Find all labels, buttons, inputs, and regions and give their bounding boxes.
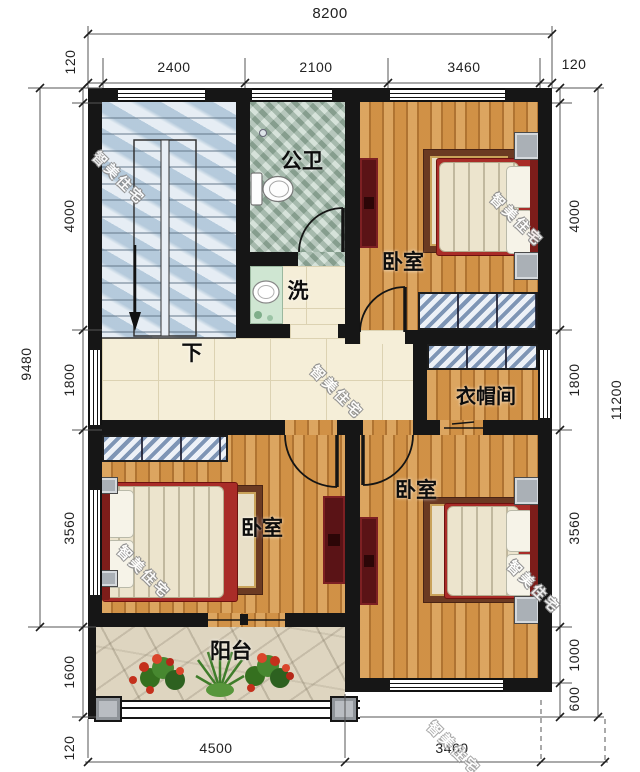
tv-cabinet-bedroom-top [360,158,378,248]
bedroom-left-door-opening [285,420,337,435]
wall-hall-bottom-b [337,420,363,435]
dim-left-4000: 4000 [61,186,77,246]
wall-bathroom-bottom [236,252,298,266]
railing-post [94,696,122,722]
nightstand [514,132,540,160]
wall-bedroom-left-bottom-a [88,613,208,627]
dim-right-4000: 4000 [566,186,582,246]
wall-hall-bottom-c [413,420,440,435]
wardrobe-cloakroom [427,344,538,370]
tv-cabinet-bedroom-left [323,496,345,584]
wall-cloakroom-left [413,344,427,420]
dim-top-overall: 8200 [295,6,365,22]
wall-wash-bottom-left [236,324,290,338]
label-cloakroom: 衣帽间 [431,385,541,409]
label-bedroom-top: 卧室 [363,251,443,275]
bedroom-top-door-opening [360,330,405,344]
wall-bedroom-right-bottom-b [503,678,552,692]
window-bedroom-left [88,490,102,595]
window-hall-left [88,350,102,425]
nightstand [514,477,540,505]
wall-stair-bathroom [236,102,250,338]
floor-staircase [102,102,236,338]
floor-bathroom [250,102,345,252]
wall-hall-bottom-a [88,420,285,435]
label-bedroom-right: 卧室 [376,479,456,503]
dim-bottom-120: 120 [61,718,77,772]
cloakroom-entry-opening [440,420,483,435]
window-stairs-top [118,88,205,102]
wall-hall-bottom-d [483,420,552,435]
label-stair-down: 下 [172,342,212,366]
wall-bedrooms-divider [345,435,360,692]
balcony-door-opening [208,613,285,627]
dim-left-3560: 3560 [61,498,77,558]
wardrobe-bedroom-top [418,292,538,330]
wall-bedroom-right-bottom-a [345,678,390,692]
dim-top-2100: 2100 [276,59,356,75]
balcony-railing [96,700,360,719]
wall-bedroom-left-bottom-b [285,613,360,627]
wall-bedroom-top-bottom [405,330,552,344]
dim-right-600: 600 [566,669,582,729]
wardrobe-bedroom-left [102,435,228,462]
railing-post [330,696,358,722]
bathroom-door-opening [298,252,345,266]
label-balcony: 阳台 [191,640,271,664]
window-bathroom-top [252,88,332,102]
dim-left-1800: 1800 [61,350,77,410]
bed-pillow [106,490,134,538]
bedroom-right-door-opening [363,420,413,435]
nightstand [514,252,540,280]
label-bedroom-left: 卧室 [222,517,302,541]
dim-bottom-4500: 4500 [176,740,256,756]
dim-top-120-right: 120 [556,56,592,72]
floor-plan: 公卫 洗 下 卧室 衣帽间 卧室 卧室 阳台 智美住宅 智美住宅 智美住宅 智美… [0,0,640,772]
dim-top-2400: 2400 [134,59,214,75]
tv-cabinet-bedroom-right [360,517,378,605]
window-bedroom-right-bottom [390,678,503,692]
label-bathroom: 公卫 [267,150,337,174]
dim-top-3460: 3460 [424,59,504,75]
dim-left-overall: 9480 [18,334,34,394]
dim-right-3560: 3560 [566,498,582,558]
window-bedroom-top [390,88,505,102]
label-wash: 洗 [278,280,318,304]
wash-entry-opening [290,324,338,338]
dim-right-1800: 1800 [566,350,582,410]
wall-bathroom-right [345,102,360,344]
dim-left-1600: 1600 [61,642,77,702]
dim-top-120-left: 120 [62,32,78,92]
dim-right-overall: 11200 [608,365,624,435]
wall-wash-bottom-right [338,324,360,338]
